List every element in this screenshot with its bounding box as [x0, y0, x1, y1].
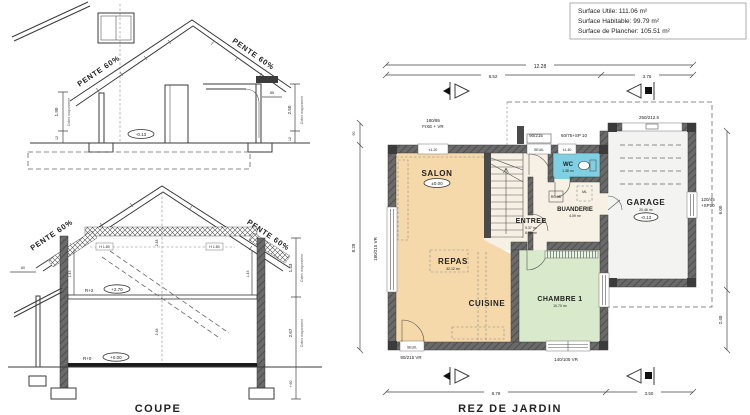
- dim-right-low: 2.40: [718, 315, 723, 324]
- garage-level: -0.13: [641, 215, 652, 220]
- dim-attic-1: 2.48: [155, 240, 159, 247]
- section-longitudinal: PENTE 60% PENTE 60% 2.48 2.48 1.43 1.43 …: [8, 186, 322, 415]
- dim-right-top-section: 2.50 Cotes maçonnerie 12 85: [262, 84, 304, 143]
- floor-plan: ±1.20 SEUIL ±1.40 SEUIL: [351, 61, 730, 415]
- dim-250: 2.50: [287, 105, 292, 114]
- dim-attic-2: 2.48: [155, 329, 159, 336]
- dim-left-top-section: 1.90 Cotes maçonnerie 12: [54, 92, 71, 143]
- bl-window-label: 90/215 VR: [400, 355, 422, 360]
- entree-label: ENTREE: [516, 218, 547, 225]
- surface-utile: Surface Utile: 111.06 m²: [578, 8, 648, 15]
- salon-level: ±0.00: [431, 181, 443, 186]
- pente-label-right-top: PENTE 60%: [231, 36, 277, 72]
- section-marker-top-right: [627, 82, 654, 100]
- dim-base60: + 60: [289, 380, 293, 387]
- level-r0-value: +0.00: [110, 355, 122, 360]
- chambre-area: 10.70 m²: [553, 304, 568, 308]
- window-left: [387, 207, 397, 292]
- plan-title: REZ DE JARDIN: [458, 403, 562, 415]
- level-r0-label: R+0: [83, 356, 92, 361]
- dim-190: 1.90: [54, 107, 59, 116]
- window-garage-right: [687, 192, 697, 218]
- room-wc-fill: [553, 153, 600, 179]
- window-bottom-right: [546, 341, 590, 351]
- entree-area-1: 9.37 m²: [525, 226, 538, 230]
- dim-eave: 60: [21, 266, 25, 270]
- section-marker-top-left: [443, 82, 469, 100]
- porch-lean-to: 60: [10, 266, 62, 386]
- repas-area: 32.12 m²: [446, 267, 461, 271]
- washing-machine-label: ML: [582, 190, 587, 194]
- dim-note-up: Cotes maçonnerie: [300, 254, 304, 282]
- dim-bottom: 8.78 3.50: [383, 388, 696, 396]
- sill-label-bl: SEUIL: [407, 346, 417, 350]
- dim-12-left: 12: [55, 136, 59, 140]
- dim-note-low: Cotes maçonnerie: [300, 319, 304, 347]
- gable-window: [98, 13, 134, 43]
- dim-top-left: 8.52: [489, 74, 498, 79]
- dim-top: 12.28 8.52 3.76: [383, 61, 696, 79]
- coupe-title: COUPE: [135, 403, 182, 415]
- chambre-label: CHAMBRE 1: [537, 296, 582, 303]
- wc-window-label: 60/75+SP 10: [561, 133, 588, 138]
- drawing-canvas: PENTE 60% PENTE 60% -0.13 1.90 Cotes maç…: [0, 0, 750, 415]
- br-window-label: 140/105 VR: [554, 357, 579, 362]
- level-oval-garage: -0.13: [128, 130, 154, 139]
- section-transversal: PENTE 60% PENTE 60% -0.13 1.90 Cotes maç…: [12, 2, 310, 169]
- dim-left-up: .90: [352, 132, 356, 137]
- dim-bottom-left: 8.78: [492, 391, 501, 396]
- dim-note-right: Cotes maçonnerie: [300, 96, 304, 124]
- radiator: [545, 251, 598, 258]
- window-wc: ±1.40: [558, 144, 576, 154]
- garage-door-label: 250/212.5: [639, 115, 660, 120]
- dim-top-total: 12.28: [534, 64, 547, 70]
- sill-label-tl: ±1.20: [429, 148, 438, 152]
- sill-label-entry: SEUIL: [534, 148, 544, 152]
- section-marker-bottom-right: [627, 367, 654, 385]
- window-chambre-right: [599, 273, 609, 307]
- dim-bottom-right: 3.50: [645, 391, 654, 396]
- window-top-left: ±1.20: [418, 144, 448, 154]
- headroom-label-1: H 1.80: [99, 245, 109, 249]
- wc-label: WC: [563, 162, 574, 168]
- dim-knee-left: 1.43: [68, 271, 72, 278]
- porch-post: [517, 126, 524, 144]
- buanderie-area: 4.09 m²: [569, 214, 582, 218]
- dim-top-right: 3.76: [643, 74, 652, 79]
- architectural-drawing-sheet: PENTE 60% PENTE 60% -0.13 1.90 Cotes maç…: [0, 0, 750, 415]
- win-tl-label-1: 180/95: [426, 118, 440, 123]
- garage-window-label-2: +SP10: [701, 203, 715, 208]
- dim-right-bottom-section: 1.43 Cotes maçonnerie 2.67 Cotes maçonne…: [288, 238, 304, 399]
- dim-left-main: 8.28: [351, 243, 356, 252]
- surface-habitable: Surface Habitable: 99.79 m²: [578, 18, 660, 25]
- salon-label: SALON: [422, 169, 453, 178]
- level-value: -0.13: [136, 132, 147, 137]
- surface-info-box: Surface Utile: 111.06 m² Surface Habitab…: [570, 3, 746, 39]
- level-r2: R+2 +2.70: [85, 285, 130, 293]
- equipment-label: RC 3D: [551, 195, 562, 199]
- garage-window-label-1: 120/45: [701, 197, 715, 202]
- dim-267: 2.67: [288, 328, 293, 337]
- entry-door-label: 90/215: [529, 133, 543, 138]
- headroom-label-2: H 1.80: [209, 245, 219, 249]
- dim-left: .90 8.28: [351, 120, 363, 353]
- dim-85: 85: [270, 91, 274, 95]
- surface-plancher: Surface de Plancher: 105.51 m²: [578, 28, 671, 35]
- repas-label: REPAS: [438, 257, 468, 266]
- level-r2-value: +2.70: [111, 287, 123, 292]
- section-marker-bottom-left: [443, 367, 469, 385]
- dim-12-right: 12: [288, 137, 292, 141]
- dim-right-up: 6.00: [718, 205, 723, 214]
- level-r2-label: R+2: [85, 288, 94, 293]
- dim-knee-right: 1.43: [246, 271, 250, 278]
- dim-right: 6.00 2.40: [718, 128, 730, 353]
- garage-area: 20.46 m²: [639, 208, 654, 212]
- entree-area-2: 6.96 m²: [525, 231, 538, 235]
- dim-note-left: Cotes maçonnerie: [67, 98, 71, 126]
- dim-143: 1.43: [288, 263, 293, 272]
- buanderie-label: BUANDERIE: [557, 207, 593, 213]
- garage-label: GARAGE: [627, 198, 666, 207]
- left-window-label: 180/215 VR: [373, 236, 378, 261]
- level-r0: R+0 +0.00: [83, 353, 129, 361]
- win-tl-label-2: FIXE + VR: [422, 124, 444, 129]
- wc-area: 1.38 m²: [562, 169, 575, 173]
- attic-detail: 2.48 2.48 1.43 1.43 H 1.80 H 1.80: [68, 192, 252, 363]
- sill-label-wc: ±1.40: [563, 148, 572, 152]
- cuisine-label: CUISINE: [469, 299, 506, 308]
